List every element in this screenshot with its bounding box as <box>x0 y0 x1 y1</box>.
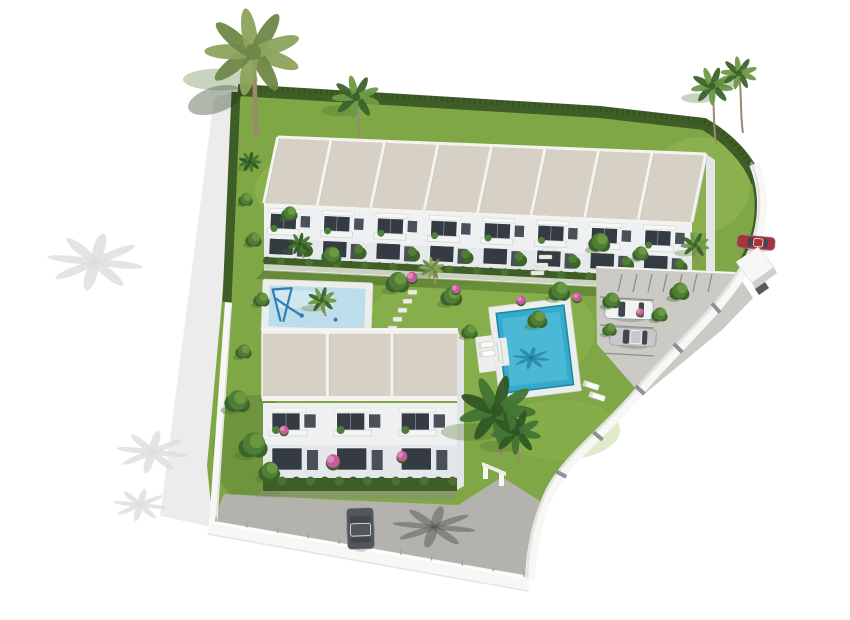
car-roof <box>753 238 763 247</box>
lower-townhouse-block <box>262 328 464 491</box>
entry-door <box>372 450 383 470</box>
tree-foliage <box>639 247 647 255</box>
shrub-bloom <box>327 456 334 463</box>
bougainvillea-shrub <box>636 308 644 317</box>
hedge-scallop <box>347 261 355 269</box>
hedge-scallop <box>263 257 271 265</box>
shrub-bloom <box>407 273 413 279</box>
hedge-scallop <box>434 477 443 486</box>
hedge-scallop <box>543 270 551 278</box>
shrub-bloom <box>452 285 457 290</box>
small-window <box>568 227 579 239</box>
small-window <box>621 230 632 242</box>
palm-crown <box>245 44 261 60</box>
hedge-scallop <box>420 477 429 486</box>
small-window <box>407 220 418 232</box>
stepping-stone <box>403 299 412 304</box>
upper-end-wall <box>706 154 715 284</box>
hedge-scallop <box>305 259 313 267</box>
lower-end-wall <box>457 333 464 490</box>
tree-foliage <box>557 283 568 294</box>
hedge-scallop <box>501 268 509 276</box>
palm-crown <box>512 428 520 436</box>
hedge-scallop <box>291 258 299 266</box>
hedge-scallop <box>277 257 285 265</box>
awning <box>335 408 371 412</box>
hedge-scallop <box>403 263 411 271</box>
hedge-scallop <box>459 266 467 274</box>
hedge-scallop <box>363 477 372 486</box>
hedge-scallop <box>557 271 565 279</box>
bougainvillea-shrub <box>326 454 340 470</box>
small-window <box>514 225 525 237</box>
bougainvillea-shrub <box>572 293 582 304</box>
lower-roof <box>262 333 458 398</box>
lower-eaves <box>262 396 458 401</box>
entry-door <box>436 450 447 470</box>
palm-crown <box>430 266 434 270</box>
palm-crown <box>491 404 504 417</box>
tree-foliage <box>658 308 666 316</box>
stepping-stone <box>393 317 402 322</box>
car-windshield <box>747 237 753 246</box>
shrub-bloom <box>637 309 641 313</box>
garden-stair <box>531 271 544 275</box>
tree-foliage <box>468 325 476 333</box>
hedge-scallop <box>406 477 415 486</box>
palm-ground-shadow <box>441 423 501 441</box>
palm-crown <box>320 298 325 303</box>
car-windshield <box>623 329 630 343</box>
tree-foliage <box>597 234 608 245</box>
small-window <box>354 218 365 230</box>
car-roof <box>630 330 642 344</box>
car-roof <box>350 523 370 536</box>
garden-stair <box>535 263 548 267</box>
garden-stair <box>539 255 552 259</box>
lounger-pillow <box>478 343 482 349</box>
tree-foliage <box>252 233 260 241</box>
hedge-scallop <box>515 269 523 277</box>
ground-window <box>483 248 508 265</box>
hedge-scallop <box>320 477 329 486</box>
palm-crown <box>248 160 252 164</box>
hedge-scallop <box>391 477 400 486</box>
hedge-scallop <box>389 263 397 271</box>
tree-foliage <box>535 312 545 322</box>
tree-foliage <box>244 194 251 201</box>
entry-door <box>307 450 318 470</box>
balcony-plant <box>401 426 409 434</box>
balcony-plant <box>337 426 345 434</box>
hedge-scallop <box>448 477 457 486</box>
palm-crown <box>352 93 360 101</box>
car-roof <box>626 302 638 316</box>
hedge-scallop <box>292 477 301 486</box>
hedge-scallop <box>473 267 481 275</box>
ground-window <box>337 448 367 470</box>
shrub-bloom <box>517 296 522 301</box>
tree-foliage <box>250 434 264 448</box>
tree-foliage <box>242 345 250 353</box>
shrub-bloom <box>397 452 403 458</box>
tree-foliage <box>677 284 687 294</box>
car-rear-window <box>350 537 371 543</box>
hedge-scallop <box>361 261 369 269</box>
car-rear-window <box>642 330 648 344</box>
hedge-scallop <box>306 477 315 486</box>
tree-foliage <box>288 207 296 215</box>
small-window <box>300 216 311 228</box>
stepping-stone <box>398 308 407 313</box>
hedge-scallop <box>375 262 383 270</box>
palm-crown <box>693 243 698 248</box>
stepping-stone <box>408 290 417 295</box>
palm-crown <box>736 70 742 76</box>
gray-car-driveway <box>345 508 376 553</box>
tree-foliage <box>609 293 618 302</box>
shrub-bloom <box>280 426 285 431</box>
hedge-scallop <box>487 268 495 276</box>
garden-stair <box>543 247 556 251</box>
car-windshield <box>350 516 371 523</box>
palm-crown <box>298 242 302 246</box>
tree-foliage <box>260 293 268 301</box>
aerial-site-render <box>0 0 850 620</box>
render-canvas <box>0 0 850 620</box>
small-window <box>433 414 445 428</box>
tree-foliage <box>394 273 406 285</box>
hedge-scallop <box>349 477 358 486</box>
bougainvillea-shrub <box>516 296 526 307</box>
ground-window <box>429 245 454 262</box>
bougainvillea-shrub <box>279 426 289 437</box>
hedge-scallop <box>445 265 453 273</box>
awning <box>270 408 306 412</box>
tree-foliage <box>267 463 278 474</box>
bougainvillea-shrub <box>451 285 461 296</box>
hedge-scallop <box>571 272 579 280</box>
hedge-scallop <box>335 477 344 486</box>
ground-window <box>376 243 401 260</box>
tree-foliage <box>608 324 615 331</box>
small-window <box>304 414 316 428</box>
lounger-pillow <box>479 351 483 357</box>
tree-foliage <box>329 248 339 258</box>
balcony-plant <box>272 426 280 434</box>
bougainvillea-shrub <box>396 451 407 464</box>
small-window <box>461 223 472 235</box>
awning <box>399 408 435 412</box>
shrub-bloom <box>573 293 578 298</box>
tree-foliage <box>234 391 247 404</box>
hedge-scallop <box>585 272 593 280</box>
small-window <box>369 414 381 428</box>
hedge-scallop <box>377 477 386 486</box>
palm-ground-shadow <box>301 305 324 312</box>
